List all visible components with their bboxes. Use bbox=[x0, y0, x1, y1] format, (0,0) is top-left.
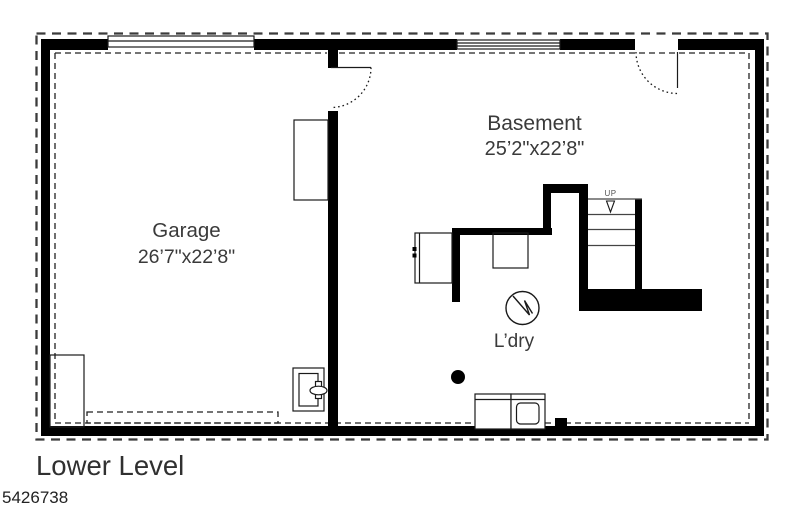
support-column-dot bbox=[451, 370, 465, 384]
fixtures bbox=[50, 120, 545, 429]
garage-room-dimensions: 26’7"x22’8" bbox=[138, 246, 235, 269]
stairs-up-label: UP bbox=[605, 189, 617, 198]
plan-number: 5426738 bbox=[2, 488, 68, 508]
utility-unit bbox=[413, 233, 453, 283]
interior-wall-above-door bbox=[328, 39, 338, 68]
top-wall-b bbox=[254, 39, 457, 50]
laundry-wall-horizontal bbox=[452, 228, 552, 235]
top-wall-c bbox=[560, 39, 635, 50]
electrical-panel bbox=[293, 368, 327, 411]
door-basement-exterior bbox=[636, 52, 678, 94]
panel-handle bbox=[310, 386, 327, 395]
bottom-wall bbox=[41, 426, 764, 436]
utility-hinge-1 bbox=[413, 247, 417, 251]
stair-wall-main-vertical bbox=[579, 184, 588, 290]
floor-plan-drawing bbox=[0, 0, 800, 510]
walls bbox=[41, 39, 764, 436]
utility-hinge-2 bbox=[413, 254, 417, 258]
washer-dryer bbox=[475, 394, 545, 429]
utility-body bbox=[415, 233, 452, 283]
up-arrow-icon bbox=[607, 201, 615, 212]
interior-wall-main bbox=[328, 111, 338, 436]
laundry-label: L’dry bbox=[494, 331, 534, 353]
left-wall bbox=[41, 39, 50, 436]
level-title: Lower Level bbox=[36, 450, 184, 482]
overhead-garage-door-dashed bbox=[87, 412, 278, 423]
basement-room-label: Basement bbox=[487, 112, 582, 136]
basement-room-dimensions: 25’2"x22’8" bbox=[485, 138, 585, 161]
outer-dashed-boundary bbox=[37, 34, 768, 440]
basement-window bbox=[457, 40, 560, 49]
staircase bbox=[588, 199, 642, 246]
right-wall bbox=[755, 39, 764, 436]
wall-post bbox=[555, 418, 567, 428]
garage-wall-shelf bbox=[294, 120, 328, 200]
understair-wall-mass bbox=[579, 289, 702, 311]
top-wall-a bbox=[41, 39, 108, 50]
door-swing-arc bbox=[636, 52, 678, 94]
garage-door bbox=[108, 36, 254, 47]
window-frame bbox=[457, 40, 560, 49]
garage-room-label: Garage bbox=[152, 219, 220, 243]
door-garage-basement bbox=[331, 68, 371, 108]
floor-plan-page: Garage 26’7"x22’8" Basement 25’2"x22’8" … bbox=[0, 0, 800, 510]
laundry-symbol-icon bbox=[506, 292, 539, 325]
furnace-square bbox=[493, 233, 528, 268]
laundry-wall-vertical bbox=[452, 228, 460, 302]
dryer-drum bbox=[517, 403, 540, 424]
top-wall-d bbox=[678, 39, 764, 50]
stair-wall-right bbox=[635, 199, 642, 290]
door-swing-arc bbox=[331, 68, 371, 108]
